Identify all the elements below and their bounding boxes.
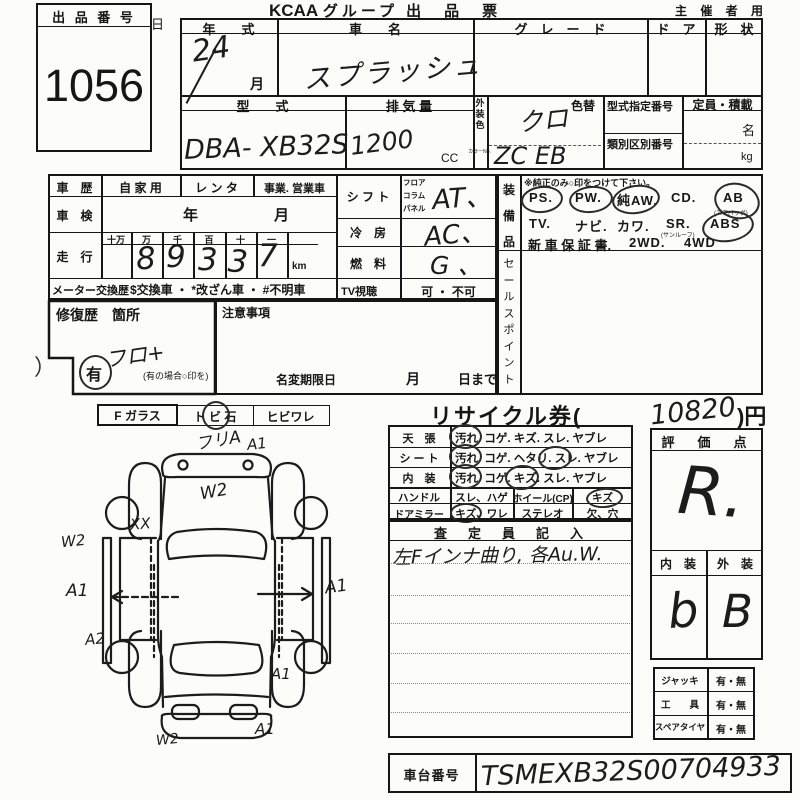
sales-strip-char: セ xyxy=(504,256,515,273)
hw-interior-score: b xyxy=(666,582,700,640)
equipment-strip-char: 備 xyxy=(503,203,515,229)
exterior-score-label: 外 装 xyxy=(707,555,763,572)
hw-diagram-rear-w2: W2 xyxy=(155,731,179,749)
sales-strip-char: ス xyxy=(504,306,515,323)
rename-month: 月 xyxy=(406,369,420,389)
equip-cd: CD. xyxy=(671,190,696,205)
chassis-label: 車台番号 xyxy=(388,765,475,784)
inspection-year: 年 xyxy=(183,204,198,225)
shape-header: 形 状 xyxy=(705,19,763,38)
hw-year: 24 xyxy=(190,30,233,70)
mirror-label: ドアミラー xyxy=(388,506,450,521)
line xyxy=(48,196,336,197)
holder-label: 主 催 者 用 xyxy=(675,2,768,19)
rear-plate-right xyxy=(230,705,257,719)
equip-tv: TV. xyxy=(529,216,551,231)
caution-label: 注意事項 xyxy=(222,304,270,321)
tv-label: TV視聴 xyxy=(341,283,377,299)
hw-exterior-score: B xyxy=(722,585,753,638)
ext-color-char: 色 xyxy=(475,120,484,131)
sales-strip-char: イ xyxy=(504,339,515,356)
interior-score-label: 内 装 xyxy=(650,555,706,572)
rename-day: 日まで xyxy=(458,369,497,388)
sparetire-value: 有・無 xyxy=(707,721,755,736)
line xyxy=(388,447,633,448)
hw-mile-digit: 3 xyxy=(227,243,249,280)
ruled-line xyxy=(391,623,630,624)
mileage-label: 走 行 xyxy=(48,248,101,265)
line xyxy=(603,133,682,134)
headlight-right xyxy=(244,461,253,470)
stray-paren-mark: ） xyxy=(34,350,56,382)
sales-strip-char: ル xyxy=(504,289,515,306)
lot-divider xyxy=(38,26,150,27)
front-wheel-right xyxy=(295,497,327,529)
line xyxy=(287,232,289,278)
hw-diagram-left-a1: A1 xyxy=(66,581,88,601)
circle-mark-interior-dirt xyxy=(449,464,482,489)
ruled-line xyxy=(391,712,630,713)
car-diagram xyxy=(50,425,390,770)
hw-diagram-left-a2: A2 xyxy=(84,629,105,649)
ruled-line xyxy=(391,595,630,596)
line xyxy=(487,95,489,170)
equipment-strip-char: 品 xyxy=(503,229,515,255)
model-header: 型 式 xyxy=(180,96,345,115)
shift-option: パネル xyxy=(403,202,426,215)
door-header: ド ア xyxy=(647,19,705,38)
sales-point-strip: セ ー ル ス ポ イ ン ト xyxy=(498,256,520,388)
capacity-header: 定員・積載 xyxy=(682,96,763,113)
line xyxy=(650,575,763,576)
equip-navi: ナビ. xyxy=(575,216,608,235)
hw-recycle-amount: 10820 xyxy=(649,392,738,432)
hw-mile-digit: 9 xyxy=(166,239,186,275)
ext-color-char: 装 xyxy=(475,109,484,120)
tv-options: 可 ・ 不可 xyxy=(400,283,497,300)
grade-header: グ レ ー ド xyxy=(473,19,647,38)
sales-strip-char: ー xyxy=(504,273,515,290)
ruled-line xyxy=(391,683,630,684)
hw-diagram-rear-right-a1: A1 xyxy=(271,665,291,683)
wheel-label: ホイール(CP) xyxy=(513,490,572,505)
rocker-strip-right xyxy=(322,538,330,663)
ext-color-char: 外 xyxy=(475,98,484,109)
sales-strip-char: ン xyxy=(504,355,515,372)
hw-color-code: ZC EB xyxy=(494,142,566,170)
hw-score: R. xyxy=(675,452,747,533)
ceiling-label: 天 張 xyxy=(388,430,450,446)
fuel-label: 燃 料 xyxy=(336,255,400,272)
handle-label: ハンドル xyxy=(388,490,450,505)
line xyxy=(475,753,477,793)
toolkit-label: 工 具 xyxy=(653,697,707,711)
hw-mile-digit: 3 xyxy=(198,242,218,278)
meter-history-options: $交換車 ・ *改ざん車 ・ #不明車 xyxy=(130,281,305,298)
business-label: 事業. 営業車 xyxy=(253,180,336,196)
shift-options: フロア コラム パネル xyxy=(403,176,426,215)
color-no-label: カラーNo. xyxy=(471,148,488,155)
history-label: 車 歴 xyxy=(48,179,101,196)
line xyxy=(653,691,755,692)
hw-model: DBA- XB32S xyxy=(184,129,350,166)
crack-label: ヒビワレ xyxy=(252,408,329,425)
hw-inspector-note: 左Fインナ曲り, 各Au.W. xyxy=(392,539,603,570)
hw-diagram-rear-a1: A1 xyxy=(255,720,275,738)
equip-warranty: 新 車 保 証 書. xyxy=(528,235,611,254)
hw-fuel: G 、 xyxy=(430,246,482,282)
sales-strip-char: ト xyxy=(504,372,515,389)
month-suffix: 月 xyxy=(250,74,264,94)
equip-leather: カワ. xyxy=(617,216,650,235)
carname-header: 車 名 xyxy=(277,19,473,38)
line xyxy=(653,715,755,716)
shift-option: フロア xyxy=(403,176,426,189)
rear-plate-left xyxy=(172,705,199,719)
stereo-label: ステレオ xyxy=(513,506,572,521)
equip-sr: SR. xyxy=(666,216,691,231)
repair-note-label: (有の場合○印を) xyxy=(143,369,208,382)
jack-label: ジャッキ xyxy=(653,673,707,687)
cooling-label: 冷 房 xyxy=(336,224,400,241)
line xyxy=(650,450,763,451)
repair-label: 修復歴 箇所 xyxy=(56,305,140,325)
lot-number: 1056 xyxy=(36,60,152,112)
persons-unit: 名 xyxy=(742,120,755,139)
seat-label: シ ー ト xyxy=(388,450,450,466)
rental-label: レ ン タ xyxy=(180,179,253,196)
rear-window xyxy=(171,642,263,676)
score-header: 評 価 点 xyxy=(650,432,763,451)
equipment-strip-char: 装 xyxy=(503,177,515,203)
meter-history-label: メーター交換歴 xyxy=(52,282,129,298)
interior-label: 内 装 xyxy=(388,470,450,486)
capacity-divider-dashed xyxy=(684,143,761,144)
shift-option: コラム xyxy=(403,189,426,202)
sparetire-label: スペアタイヤ xyxy=(653,721,707,733)
toolkit-value: 有・無 xyxy=(707,697,755,712)
km-unit: km xyxy=(292,261,306,272)
recycle-suffix: )円 xyxy=(737,399,766,431)
inspection-month: 月 xyxy=(274,204,289,225)
ext-color-strip: 外 装 色 xyxy=(473,98,487,131)
equip-2wd: 2WD. xyxy=(629,235,666,250)
class-no-label: 類別区別番号 xyxy=(607,136,673,152)
jack-value: 有・無 xyxy=(707,673,755,688)
hw-color: クロ xyxy=(516,98,570,139)
trunk-line xyxy=(165,695,268,698)
rename-deadline-label: 名変期限日 xyxy=(276,371,336,388)
hw-diagram-right-a1: A1 xyxy=(324,576,349,599)
private-use-label: 自 家 用 xyxy=(101,179,180,196)
lot-label: 出 品 番 号 xyxy=(36,7,152,26)
hw-mile-digit: 7 xyxy=(258,238,278,274)
inspection-label: 車 検 xyxy=(48,207,101,224)
fglass-label: F ガラス xyxy=(97,407,178,424)
line xyxy=(400,174,402,300)
stereo-options: 欠、穴 xyxy=(572,506,633,521)
cc-unit: CC xyxy=(441,151,458,165)
equipment-strip: 装 備 品 xyxy=(498,177,520,255)
displacement-header: 排 気 量 xyxy=(345,96,473,115)
hw-diagram-front-a1: A1 xyxy=(246,434,268,454)
kg-unit: kg xyxy=(741,151,753,163)
auction-sheet: KCAA グループ 出 品 票 主 催 者 用 日 出 品 番 号 1056 年… xyxy=(0,0,800,800)
color-change-label: 色替 xyxy=(571,97,595,114)
stray-day-mark: 日 xyxy=(151,14,164,33)
ruled-line xyxy=(391,563,630,564)
hw-mile-digit: 8 xyxy=(135,240,157,277)
shift-label: シ フ ト xyxy=(336,188,400,205)
sales-strip-char: ポ xyxy=(504,322,515,339)
hw-diagram-left-xx: XX xyxy=(129,514,151,534)
hw-diagram-left-w2: W2 xyxy=(60,531,86,551)
mile-col: 十万 xyxy=(101,233,131,246)
type-no-label: 型式指定番号 xyxy=(607,98,673,114)
ruled-line xyxy=(391,653,630,654)
line xyxy=(520,174,522,395)
headlight-left xyxy=(179,461,188,470)
windshield xyxy=(167,529,266,559)
